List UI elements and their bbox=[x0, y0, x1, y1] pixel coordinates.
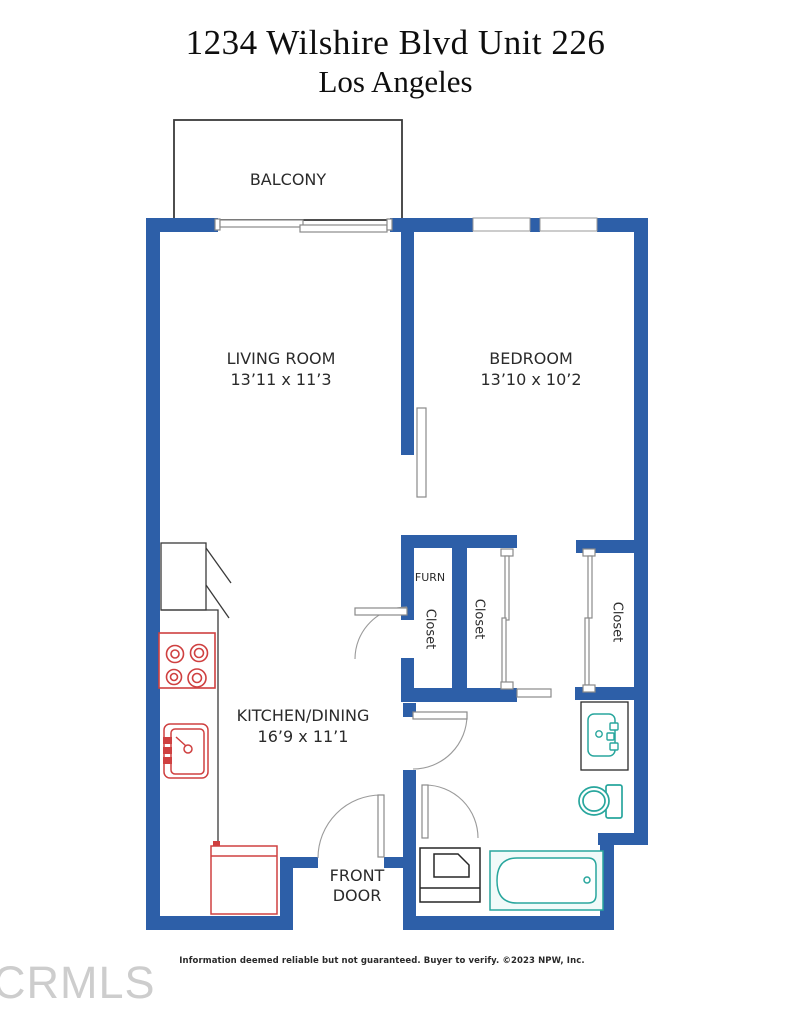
bathtub-icon bbox=[490, 851, 603, 910]
kitchen-sink-icon bbox=[163, 724, 208, 778]
bedroom-label: BEDROOM 13’10 x 10’2 bbox=[480, 348, 581, 390]
window-icon bbox=[540, 218, 597, 231]
stove-icon bbox=[159, 633, 215, 688]
vanity-sink-icon bbox=[581, 702, 628, 770]
bedroom-closet-slider-icon bbox=[583, 549, 595, 692]
page-title: 1234 Wilshire Blvd Unit 226 Los Angeles bbox=[0, 22, 791, 100]
kitchen-dining-label: KITCHEN/DINING 16’9 x 11’1 bbox=[237, 705, 370, 747]
bedroom-name: BEDROOM bbox=[489, 349, 573, 368]
furn-label: FURN bbox=[415, 571, 445, 584]
living-room-name: LIVING ROOM bbox=[227, 349, 336, 368]
kitchen-dining-dims: 16’9 x 11’1 bbox=[237, 726, 370, 747]
front-door-arc bbox=[318, 795, 381, 858]
front-door-label: FRONT DOOR bbox=[317, 866, 397, 906]
floor-plan-page: 1234 Wilshire Blvd Unit 226 Los Angeles … bbox=[0, 0, 791, 1024]
refrigerator-icon bbox=[161, 543, 206, 610]
kitchen-dining-name: KITCHEN/DINING bbox=[237, 706, 370, 725]
wall-closet-bottom bbox=[401, 688, 517, 702]
balcony-sliding-door-icon bbox=[215, 219, 392, 232]
wall-frontdoor-left-jamb bbox=[280, 857, 318, 868]
wall-closet-top bbox=[401, 535, 517, 548]
living-room-dims: 13’11 x 11’3 bbox=[227, 369, 336, 390]
address-title: 1234 Wilshire Blvd Unit 226 bbox=[0, 22, 791, 64]
middle-closet-slider-icon bbox=[501, 549, 513, 689]
hall-closet-label: Closet bbox=[423, 609, 438, 650]
wall-between-windows bbox=[530, 218, 540, 232]
toilet-icon bbox=[579, 785, 622, 818]
wall-bath-jog bbox=[598, 833, 648, 845]
city-title: Los Angeles bbox=[0, 64, 791, 100]
wall-top-left bbox=[146, 218, 218, 232]
walls bbox=[146, 218, 648, 930]
disclaimer-text: Information deemed reliable but not guar… bbox=[179, 956, 584, 966]
bathroom-door-panel-icon bbox=[422, 785, 428, 838]
bathroom-door-arc bbox=[425, 785, 478, 838]
wall-closet-divider bbox=[452, 548, 467, 688]
kitchen-counter bbox=[161, 543, 231, 848]
window-icon bbox=[473, 218, 530, 231]
wall-entry-lower bbox=[403, 770, 416, 930]
washer-icon bbox=[420, 848, 480, 902]
front-door-panel-icon bbox=[378, 795, 384, 857]
bedroom-sliding-panel-icon bbox=[417, 408, 426, 497]
bedroom-door-panel-icon bbox=[517, 689, 551, 697]
kitchen-cabinet-icon bbox=[211, 841, 277, 914]
fridge-door-line bbox=[206, 548, 231, 583]
bedroom-closet-label: Closet bbox=[610, 602, 625, 643]
living-room-label: LIVING ROOM 13’11 x 11’3 bbox=[227, 348, 336, 390]
bedroom-dims: 13’10 x 10’2 bbox=[480, 369, 581, 390]
hall-door-panel-icon bbox=[413, 712, 467, 719]
crmls-watermark: CRMLS bbox=[0, 960, 156, 1005]
balcony-label: BALCONY bbox=[250, 169, 326, 190]
wall-bottom-left bbox=[146, 916, 293, 930]
closet-door-panel-icon bbox=[355, 608, 407, 615]
hall-door-arc bbox=[413, 715, 467, 769]
wall-right bbox=[634, 218, 648, 845]
wall-bedroom-top-1 bbox=[414, 218, 473, 232]
wall-living-bedroom-divider bbox=[401, 218, 414, 455]
wall-bottom-right bbox=[403, 916, 614, 930]
middle-closet-label: Closet bbox=[472, 599, 487, 640]
wall-left bbox=[146, 218, 160, 930]
